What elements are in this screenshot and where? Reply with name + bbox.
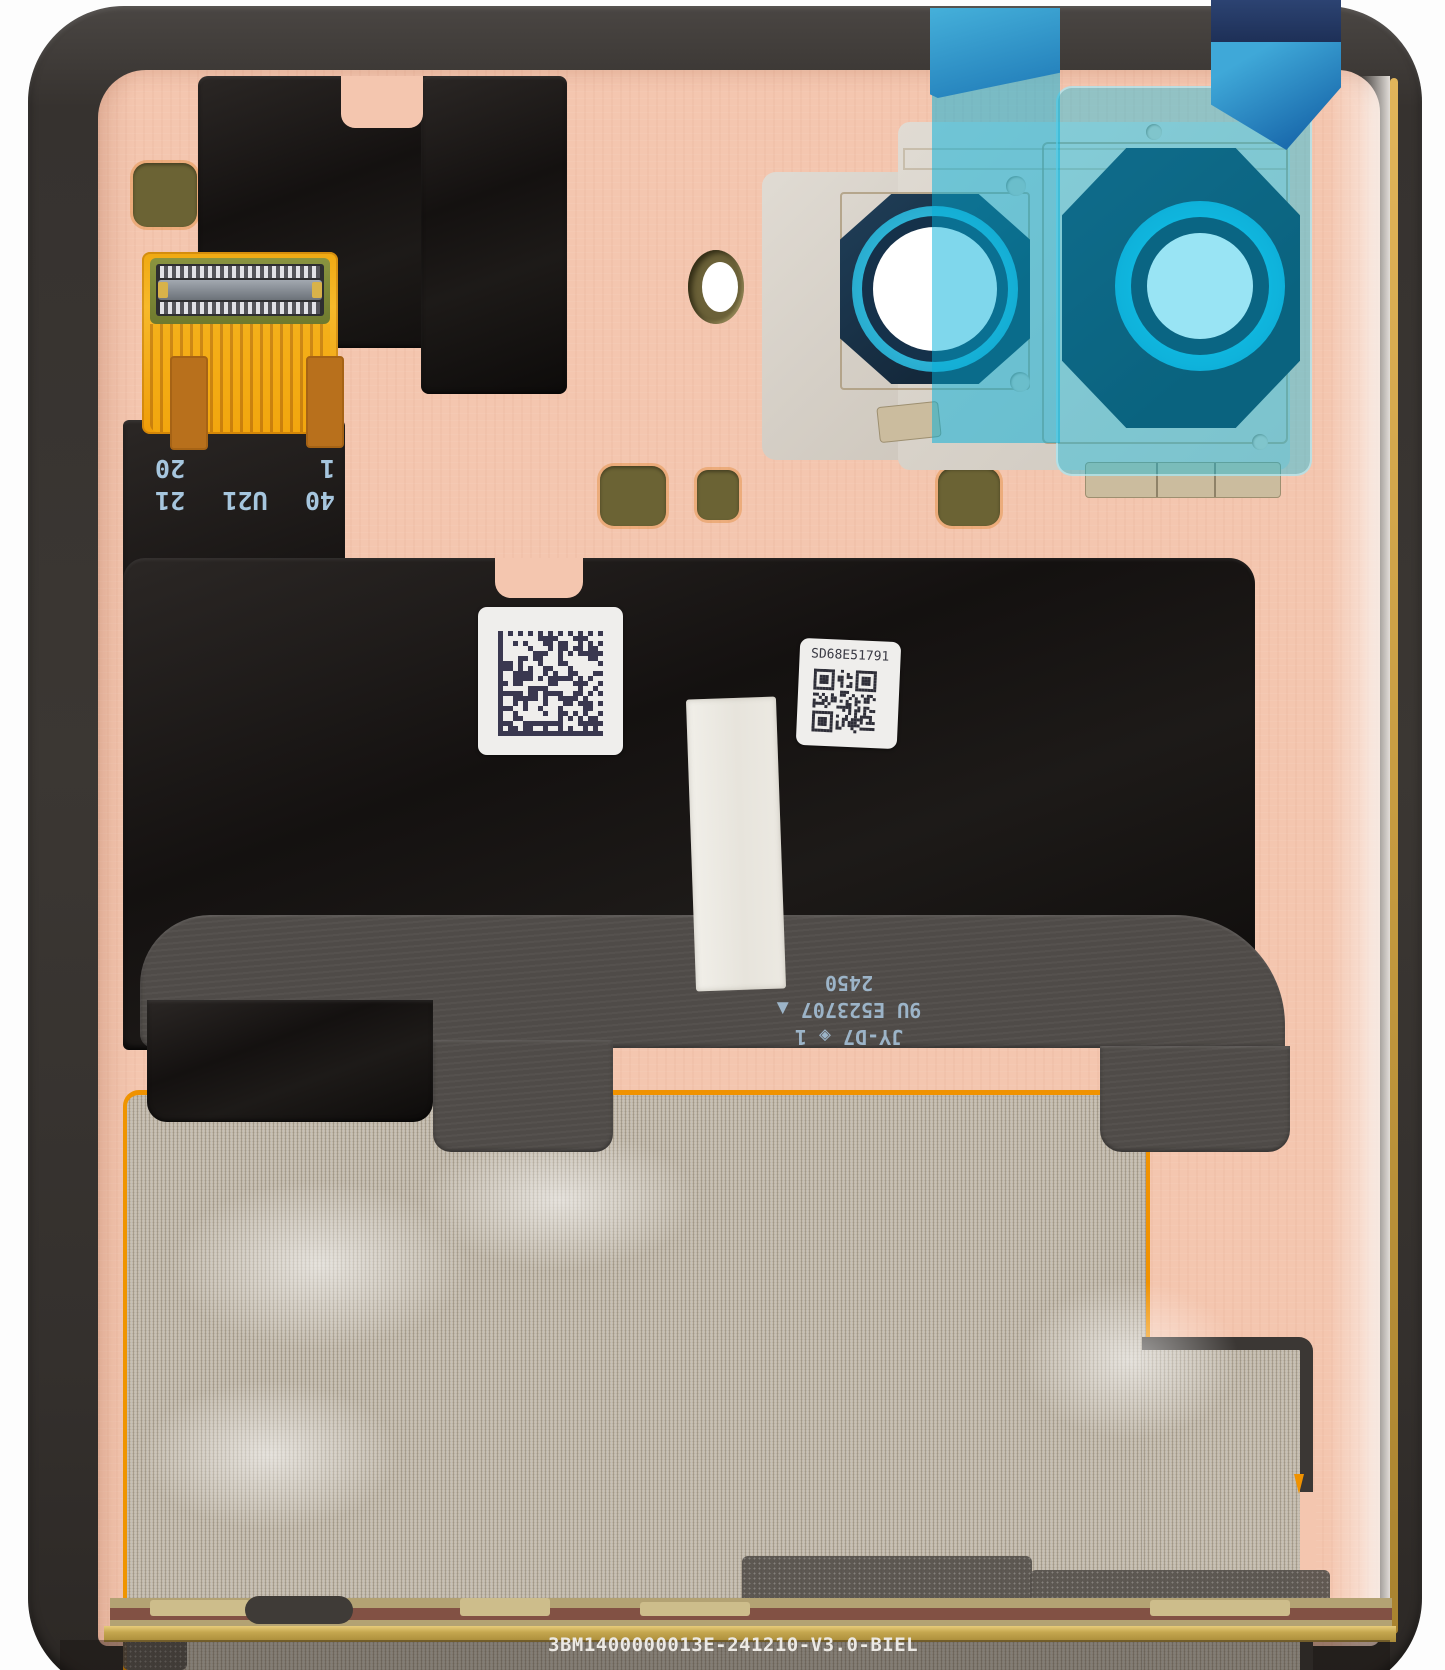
band-tab (640, 1602, 750, 1616)
marking-line: 2450 (768, 969, 930, 996)
pin-label: 1 (320, 452, 335, 484)
antenna-pad (600, 466, 666, 526)
right-edge-highlight (1360, 76, 1390, 1632)
serial-sticker: SD68E51791 (796, 638, 902, 749)
copper-pad (306, 356, 344, 448)
pin-label: U21 (222, 484, 267, 516)
flex-overlay-slate-hang (433, 1040, 613, 1152)
pink-notch (341, 76, 423, 128)
pink-notch-small (495, 558, 583, 598)
connector-gold-tip (312, 282, 322, 298)
flex-overlay-slate-tail (1100, 1046, 1290, 1152)
connector-pins-top (160, 266, 320, 278)
data-matrix-sticker (478, 607, 623, 755)
band-tab (1150, 1600, 1290, 1616)
band-tab (150, 1600, 250, 1616)
marking-line: JY-D7 ◈ 1 (768, 1023, 930, 1050)
mesh-sheen (140, 1380, 400, 1530)
mesh-sheen (1020, 1280, 1240, 1440)
antenna-pad (133, 163, 197, 227)
qr-code (811, 668, 880, 737)
connector-pin-marking: 40 U21 21 1 20 (155, 440, 335, 516)
pull-tab-right-top (1211, 0, 1341, 44)
photo-phone-back-cover: 40 U21 21 1 20 JY-D7 ◈ 1 9U E523707 ▲ 24… (0, 0, 1445, 1670)
flex-bottom-gloss (147, 1000, 433, 1122)
connector-shell (158, 280, 322, 300)
white-tape (686, 697, 786, 992)
serial-number: SD68E51791 (799, 646, 901, 665)
data-matrix-code (498, 631, 604, 737)
microphone-hole (688, 250, 744, 324)
antenna-pad (697, 470, 739, 520)
pin-label: 20 (155, 452, 185, 484)
pin-label: 21 (155, 484, 185, 516)
right-gold-trim (1390, 78, 1398, 1634)
part-number-code: 3BM1400000013E-241210-V3.0-BIEL (548, 1634, 918, 1656)
band-tab (460, 1598, 550, 1616)
board-connector (156, 264, 324, 316)
marking-row: 1 20 (155, 452, 335, 484)
marking-row: 40 U21 21 (155, 484, 335, 516)
flex-cable-marking: JY-D7 ◈ 1 9U E523707 ▲ 2450 (768, 966, 930, 1050)
copper-pad (170, 356, 208, 450)
marking-line: 9U E523707 ▲ (768, 996, 930, 1023)
antenna-pad (938, 468, 1000, 526)
hole-center (702, 262, 738, 312)
pin-label: 40 (305, 484, 335, 516)
top-left-black-step (421, 76, 567, 394)
frame-notch (245, 1596, 353, 1624)
connector-pins-bottom (160, 302, 320, 314)
connector-gold-tip (158, 282, 168, 298)
mesh-dark-patch (742, 1556, 1032, 1604)
protective-film-right (1056, 86, 1312, 476)
